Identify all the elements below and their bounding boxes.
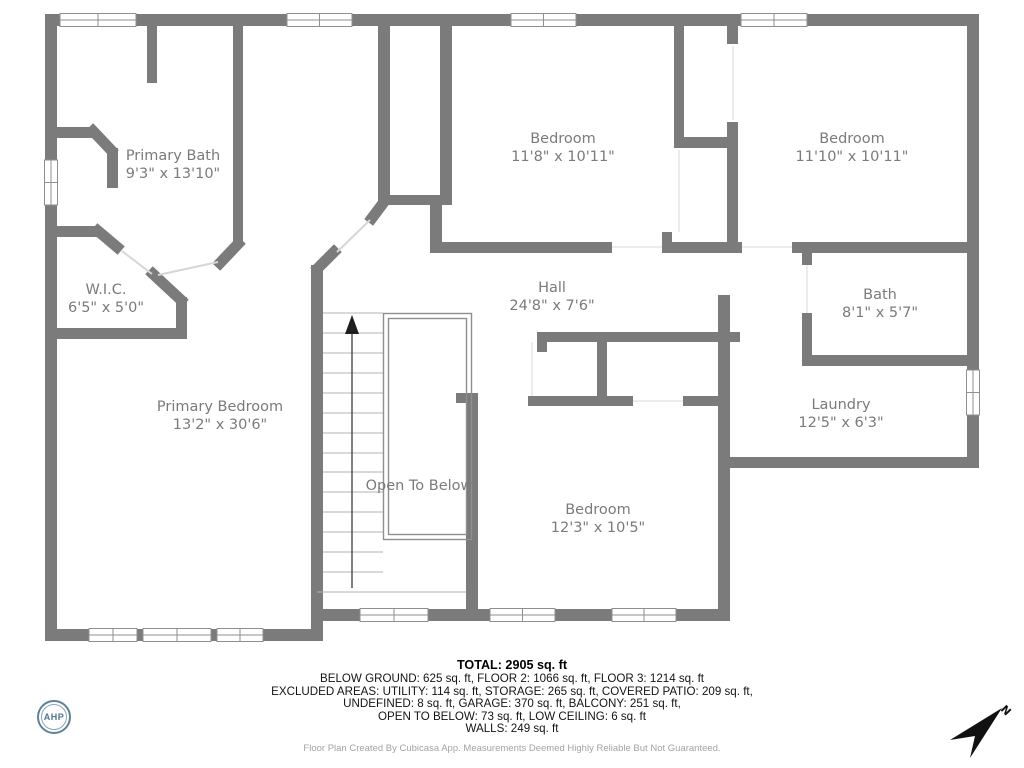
threshold-lines	[532, 46, 807, 401]
room-name: Primary Bedroom	[157, 399, 283, 417]
window	[217, 629, 263, 642]
window	[60, 14, 136, 27]
window	[967, 370, 980, 415]
room-name: Bedroom	[511, 131, 615, 149]
room-dims: 8'1" x 5'7"	[842, 305, 918, 323]
room-label-wic: W.I.C. 6'5" x 5'0"	[68, 282, 144, 317]
staircase-treads	[317, 313, 466, 592]
room-label-bedroom-bottom: Bedroom 12'3" x 10'5"	[551, 502, 645, 537]
window	[741, 14, 807, 27]
credit-line: Floor Plan Created By Cubicasa App. Meas…	[0, 743, 1024, 755]
window	[287, 14, 352, 27]
room-dims: 11'10" x 10'11"	[796, 149, 909, 167]
ahp-logo-text: AHP	[41, 704, 67, 730]
floor-plan-page: Primary Bath 9'3" x 13'10" W.I.C. 6'5" x…	[0, 0, 1024, 768]
window	[612, 609, 676, 622]
area-summary: TOTAL: 2905 sq. ft BELOW GROUND: 625 sq.…	[0, 659, 1024, 756]
floor-plan-drawing	[0, 0, 1024, 768]
room-name: Bedroom	[796, 131, 909, 149]
room-name: Primary Bath	[126, 148, 220, 166]
room-label-bedroom-top-right: Bedroom 11'10" x 10'11"	[796, 131, 909, 166]
stairs-up-arrow	[345, 315, 359, 588]
compass-label: N	[998, 703, 1014, 719]
total-area: TOTAL: 2905 sq. ft	[0, 659, 1024, 671]
window	[490, 609, 555, 622]
room-dims: 12'5" x 6'3"	[798, 415, 883, 433]
window	[360, 609, 428, 622]
area-line: WALLS: 249 sq. ft	[0, 723, 1024, 735]
room-name: Bath	[842, 287, 918, 305]
room-name: Hall	[509, 280, 594, 298]
stair-railing	[384, 314, 472, 540]
window	[143, 629, 211, 642]
room-label-primary-bath: Primary Bath 9'3" x 13'10"	[126, 148, 220, 183]
room-dims: 13'2" x 30'6"	[157, 417, 283, 435]
area-line: UNDEFINED: 8 sq. ft, GARAGE: 370 sq. ft,…	[0, 698, 1024, 710]
room-name: Laundry	[798, 397, 883, 415]
open-to-below-label: Open To Below	[366, 478, 473, 496]
room-dims: 12'3" x 10'5"	[551, 520, 645, 538]
compass-north-icon: N	[942, 698, 1014, 762]
room-label-primary-bedroom: Primary Bedroom 13'2" x 30'6"	[157, 399, 283, 434]
room-dims: 9'3" x 13'10"	[126, 166, 220, 184]
room-label-hall: Hall 24'8" x 7'6"	[509, 280, 594, 315]
room-label-laundry: Laundry 12'5" x 6'3"	[798, 397, 883, 432]
room-dims: 24'8" x 7'6"	[509, 298, 594, 316]
window	[89, 629, 137, 642]
room-label-bedroom-top-middle: Bedroom 11'8" x 10'11"	[511, 131, 615, 166]
room-dims: 11'8" x 10'11"	[511, 149, 615, 167]
ahp-logo: AHP	[37, 700, 71, 734]
window	[511, 14, 576, 27]
window	[45, 160, 58, 205]
room-name: W.I.C.	[68, 282, 144, 300]
room-dims: 6'5" x 5'0"	[68, 300, 144, 318]
area-line: BELOW GROUND: 625 sq. ft, FLOOR 2: 1066 …	[0, 673, 1024, 685]
room-label-bath: Bath 8'1" x 5'7"	[842, 287, 918, 322]
room-name: Bedroom	[551, 502, 645, 520]
